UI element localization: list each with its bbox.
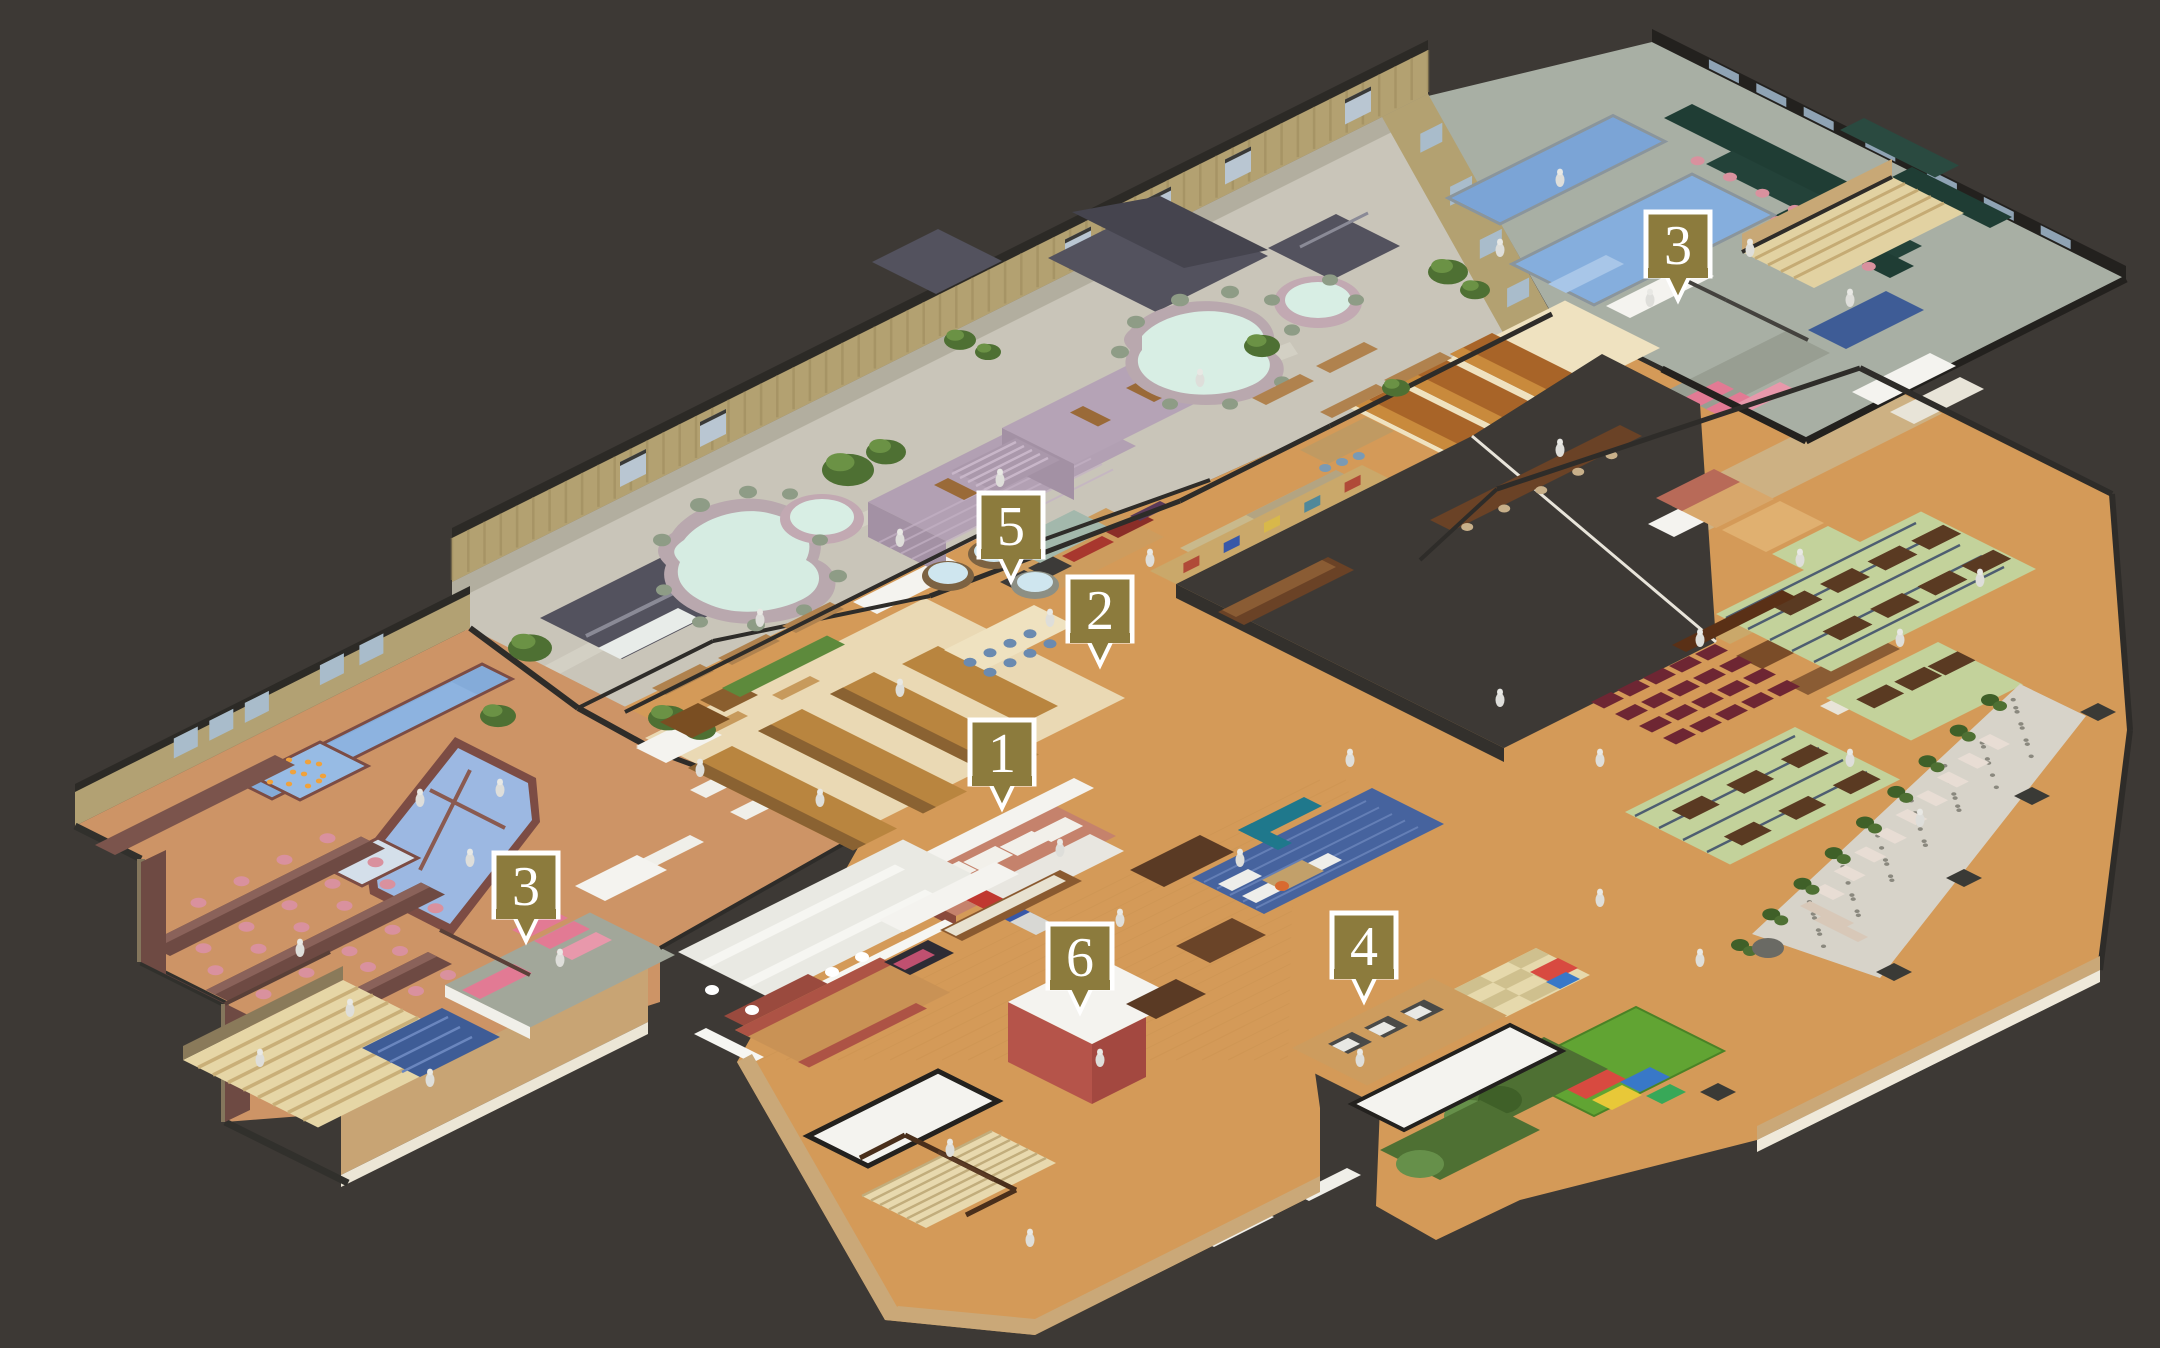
svg-text:3: 3 [512,856,540,918]
svg-text:1: 1 [988,723,1016,785]
svg-text:4: 4 [1350,916,1378,978]
svg-text:6: 6 [1066,927,1094,989]
svg-text:2: 2 [1086,580,1114,642]
svg-text:3: 3 [1664,215,1692,277]
svg-text:5: 5 [997,496,1025,558]
